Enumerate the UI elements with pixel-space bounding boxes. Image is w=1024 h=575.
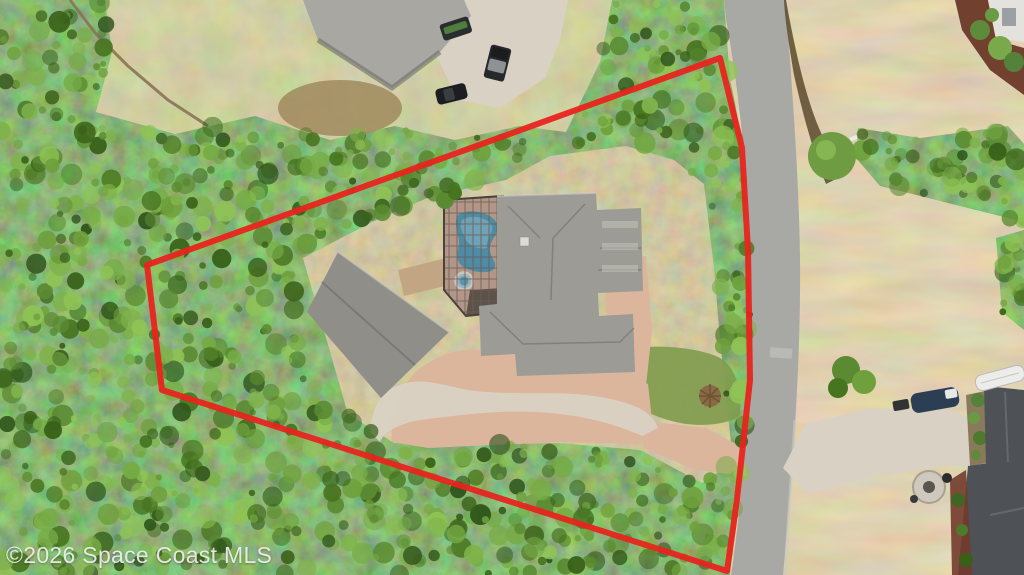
spa-water xyxy=(460,277,469,286)
fire-pit-center xyxy=(923,481,935,493)
ac-unit xyxy=(520,237,529,246)
main-house-roof xyxy=(479,193,643,376)
grill xyxy=(942,473,952,483)
patio-chair xyxy=(910,495,918,503)
aerial-scene xyxy=(0,0,1024,575)
round-tree-highlight xyxy=(816,140,836,160)
road-patch xyxy=(770,347,793,359)
neighbor-roof-upper xyxy=(984,386,1024,468)
dirt-patch xyxy=(278,80,402,136)
aerial-property-photo: ©2026 Space Coast MLS xyxy=(0,0,1024,575)
house-window-panel xyxy=(1002,8,1016,26)
